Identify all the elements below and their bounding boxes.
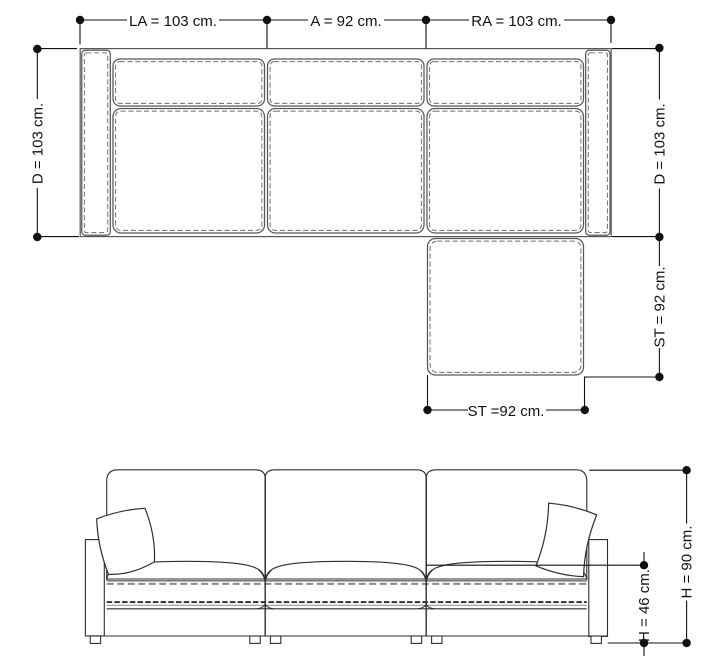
svg-text:D = 103 cm.: D = 103 cm. [651,103,668,184]
svg-text:ST =92 cm.: ST =92 cm. [468,403,545,420]
svg-text:A = 92 cm.: A = 92 cm. [310,13,381,30]
svg-text:LA = 103 cm.: LA = 103 cm. [129,13,217,30]
svg-text:H = 90 cm.: H = 90 cm. [679,526,696,599]
svg-text:D = 103 cm.: D = 103 cm. [29,103,46,184]
svg-text:H = 46 cm.: H = 46 cm. [636,569,653,642]
svg-text:RA = 103 cm.: RA = 103 cm. [471,13,561,30]
svg-text:ST = 92 cm.: ST = 92 cm. [651,266,668,347]
